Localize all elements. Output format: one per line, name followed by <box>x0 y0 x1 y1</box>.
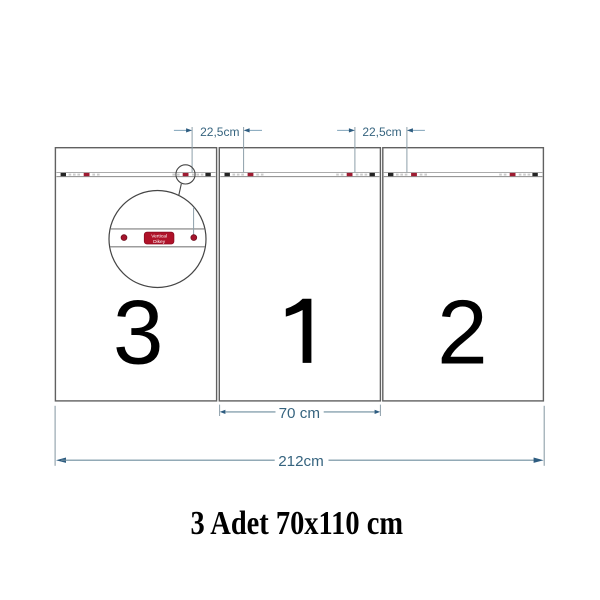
svg-text:70 cm: 70 cm <box>279 405 320 422</box>
svg-text:3 Adet 70x110 cm: 3 Adet 70x110 cm <box>191 505 404 542</box>
svg-text:22,5cm: 22,5cm <box>362 125 401 139</box>
svg-text:212cm: 212cm <box>278 453 324 470</box>
svg-text:Dikey: Dikey <box>153 239 166 245</box>
svg-text:22,5cm: 22,5cm <box>200 125 239 139</box>
svg-text:Vertical: Vertical <box>151 234 167 240</box>
svg-text:2: 2 <box>437 283 488 384</box>
svg-text:3: 3 <box>113 283 164 384</box>
